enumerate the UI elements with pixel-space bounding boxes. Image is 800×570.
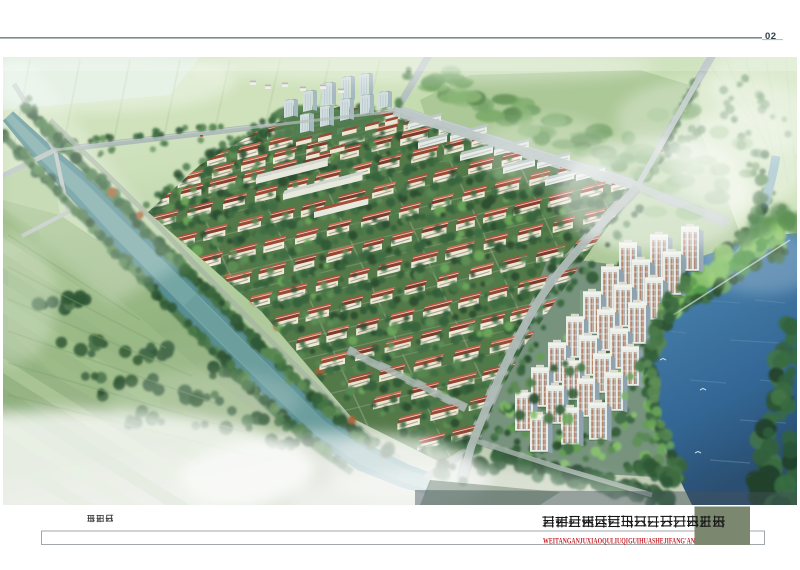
svg-text:02: 02 [765, 31, 777, 42]
svg-text:WEITANGANJUXIAOQULIUQIGUIHUASH: WEITANGANJUXIAOQULIUQIGUIHUASHEJIFANG'AN [543, 537, 695, 546]
